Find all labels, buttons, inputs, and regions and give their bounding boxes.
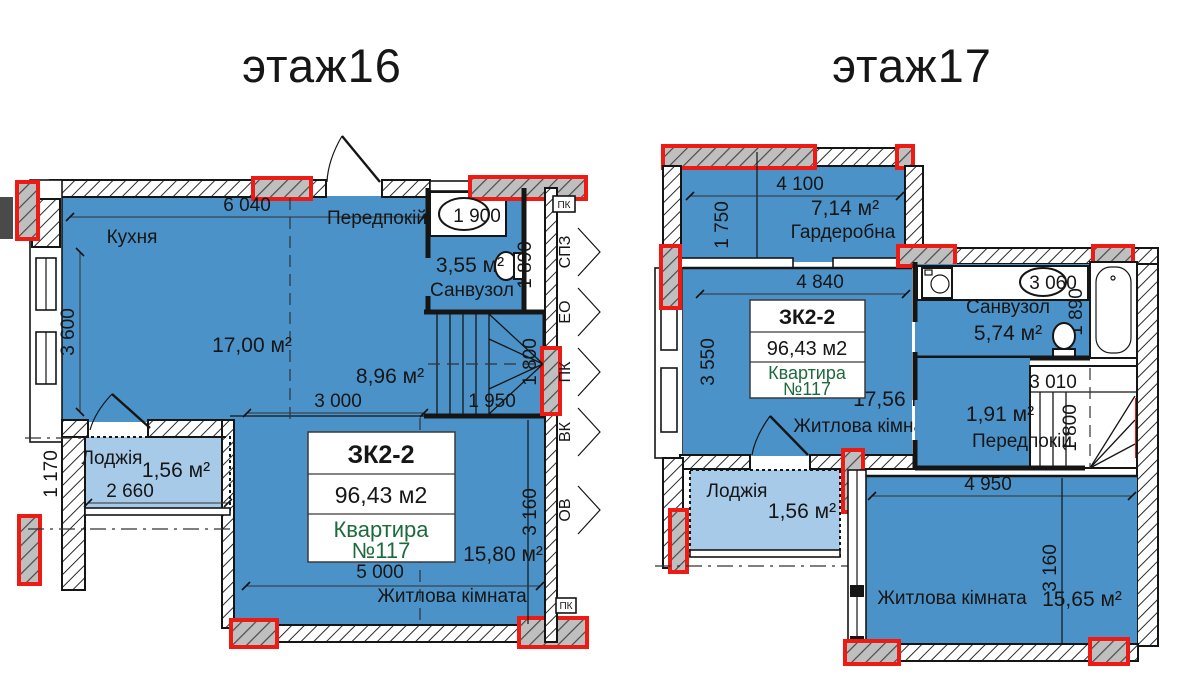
hall-area: 8,96 м² [356,365,424,388]
dim-kitchen-height: 3 600 [58,308,79,356]
red-highlight [845,641,899,664]
living-area-label: 15,80 м² [463,543,543,566]
loggia-glazing [85,508,230,515]
hall-area-label: 1,91 м² [966,403,1034,426]
dim-bathroom-width: 1 900 [453,206,501,227]
bathroom-area-label: 3,55 м² [436,254,504,277]
hall-label: Передпокій [327,208,427,229]
dim-kitchen-width: 6 040 [223,195,271,216]
living-label: Житлова кімната [377,586,527,607]
dim-stairs-width: 1 950 [468,391,516,412]
wardrobe-area-label: 7,14 м² [811,197,879,220]
dim-stairs-height: 1 800 [520,338,541,386]
hall-label: Передпокій [972,431,1072,452]
bathtub-icon [1090,262,1137,358]
living-bottom-area-label: 15,65 м² [1042,588,1122,611]
entrance-door-leaf [342,136,380,182]
dim-living-top-height: 3 550 [698,338,719,386]
living-bottom-area [866,476,1137,646]
right-outer-wall [1137,264,1158,646]
wardrobe-label: Гардеробна [791,222,896,243]
shaft-eo: ЕО [557,300,574,323]
bathroom-area-label: 5,74 м² [974,322,1042,345]
kitchen-area: 17,00 м² [212,334,292,357]
apartment-number: №117 [783,379,831,399]
floor16-title: этаж16 [242,39,402,92]
toilet-icon [1053,323,1075,358]
shaft-pk-top: ПК [557,200,570,211]
loggia-label: Лоджія [707,481,768,502]
floor17-title: этаж17 [832,39,992,92]
dim-wardrobe-width: 4 100 [776,174,824,195]
red-highlight [670,510,687,572]
bathroom-label: Санвузол [966,297,1050,318]
floorplans-canvas: этаж16 [0,0,1200,700]
shaft-ov: ОВ [557,498,574,521]
living-left-wall [222,420,234,628]
dim-loggia-height: 1 170 [41,450,62,498]
dim-living-width: 5 000 [356,562,404,583]
washing-machine-icon [922,268,952,298]
loggia-glazing [690,550,840,557]
dim-living-top-width: 4 840 [796,272,844,293]
loggia-area-label: 1,56 м² [768,500,836,523]
dim-hall-width: 3 010 [1029,372,1077,393]
apartment-info-box: ЗК2-2 96,43 м2 Квартира №117 [750,300,865,399]
shaft-spz: СПЗ [557,236,574,269]
apartment-type: ЗК2-2 [347,441,414,469]
red-highlight [17,182,38,239]
living-bottom-label: Житлова кімната [877,588,1027,609]
floorplan-page: этаж16 [0,0,1200,700]
red-highlight [898,246,955,266]
red-highlight [19,516,40,584]
wall-stub [0,197,13,239]
kitchen-label: Кухня [107,227,158,248]
red-highlight [661,246,680,308]
apartment-total-area: 96,43 м2 [335,482,428,508]
shaft-pk: ПК [557,361,574,383]
red-highlight [1090,639,1128,664]
floor17-plan: этаж17 4 100 1 750 7,14 м² Гардеробна 4 … [655,39,1158,664]
apartment-total-area: 96,43 м2 [767,338,847,360]
dim-living-bottom-width: 4 950 [964,474,1012,495]
dim-loggia-width: 2 660 [106,481,154,502]
dim-living-height: 3 160 [520,488,541,536]
loggia-label: Лоджія [82,448,143,469]
shaft-vk: ВК [557,421,574,442]
dim-living-bottom-height: 3 160 [1040,544,1061,592]
red-highlight [231,620,277,647]
window [661,368,677,432]
dim-wardrobe-height: 1 750 [712,201,733,249]
apartment-info-box: ЗК2-2 96,43 м2 Квартира №117 [308,432,455,563]
entrance-door-arc [327,136,342,182]
dim-bathroom-height: 1 890 [515,241,536,289]
loggia-area-label: 1,56 м² [142,459,210,482]
red-highlight [663,146,815,168]
shaft-pk-bottom: ПК [559,601,572,612]
bathroom-label: Санвузол [430,280,514,301]
red-highlight [897,146,913,168]
floor16-plan: этаж16 [0,39,600,647]
dim-hall-width: 3 000 [314,391,362,412]
apartment-type: ЗК2-2 [779,306,835,329]
apartment-number: №117 [352,538,411,563]
